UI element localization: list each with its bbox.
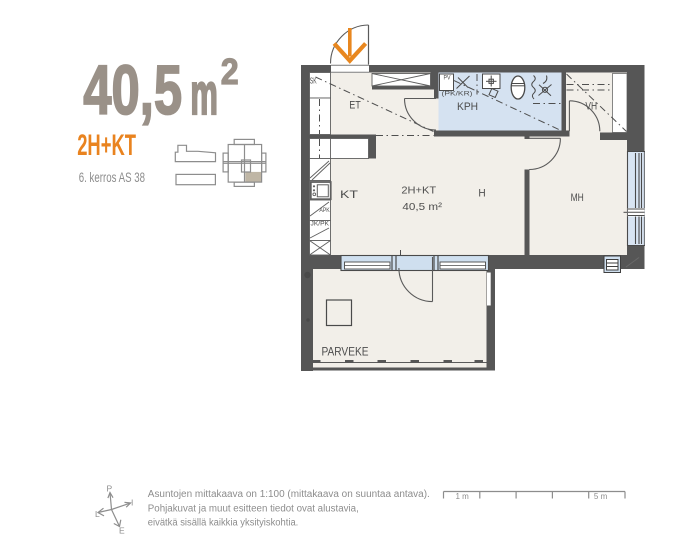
svg-text:Pohjakuvat ja muut esitteen ti: Pohjakuvat ja muut esitteen tiedot ovat … <box>148 504 359 515</box>
svg-text:JK/PK: JK/PK <box>311 222 330 228</box>
svg-text:2: 2 <box>221 51 239 92</box>
svg-text:eivätkä sisällä kaikkia yksity: eivätkä sisällä kaikkia yksityiskohtia. <box>148 518 298 529</box>
svg-text:40,5 m²: 40,5 m² <box>402 201 442 213</box>
svg-text:APK: APK <box>319 208 329 214</box>
svg-text:SK: SK <box>310 77 317 86</box>
svg-text:VH: VH <box>585 101 597 113</box>
svg-text:P: P <box>107 484 113 494</box>
svg-text:2H+KT: 2H+KT <box>401 185 436 197</box>
svg-text:m: m <box>190 62 218 127</box>
svg-text:I: I <box>131 498 133 508</box>
svg-text:6. kerros AS 38: 6. kerros AS 38 <box>79 170 145 185</box>
svg-text:KT: KT <box>340 189 358 201</box>
svg-text:2H+KT: 2H+KT <box>77 129 136 162</box>
svg-text:MH: MH <box>571 192 584 204</box>
svg-text:PARVEKE: PARVEKE <box>322 347 369 359</box>
svg-text:40,5: 40,5 <box>83 51 182 129</box>
svg-text:(PK/KR): (PK/KR) <box>442 91 473 98</box>
svg-text:PV: PV <box>444 76 451 82</box>
svg-text:Asuntojen mittakaava on 1:100: Asuntojen mittakaava on 1:100 (mittakaav… <box>148 489 430 500</box>
svg-text:1 m: 1 m <box>456 492 470 501</box>
svg-text:ET: ET <box>349 99 361 111</box>
svg-text:L: L <box>95 509 100 519</box>
svg-text:E: E <box>119 526 125 536</box>
svg-text:5 m: 5 m <box>594 492 608 501</box>
svg-text:H: H <box>478 188 485 200</box>
svg-text:KPH: KPH <box>457 101 478 113</box>
